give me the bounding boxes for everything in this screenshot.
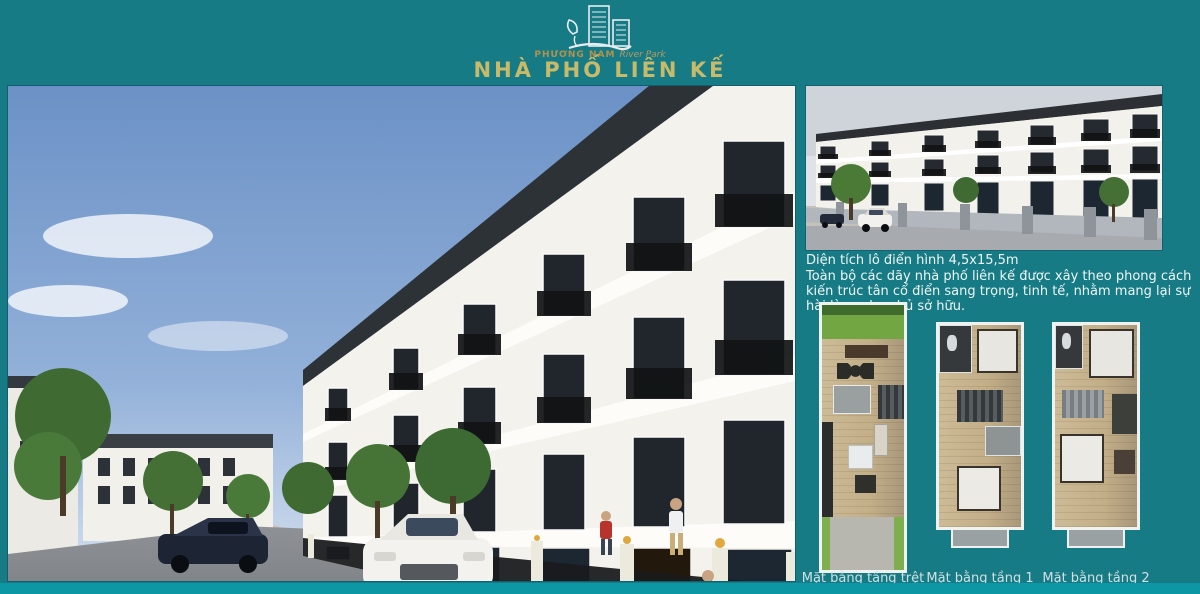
balcony [951, 530, 1009, 548]
floorplan-ground-floor [819, 302, 907, 573]
bathroom [833, 385, 871, 414]
bed [1060, 434, 1104, 482]
side-corridor [822, 422, 833, 517]
toilet [1062, 333, 1072, 349]
sofa [848, 445, 873, 469]
desk [1114, 450, 1135, 474]
tv-cabinet [855, 475, 876, 494]
main-render-image [8, 86, 795, 581]
street-perspective-illustration [8, 86, 795, 581]
driveway [822, 517, 904, 570]
floorplan-floor-2 [1052, 322, 1140, 530]
kitchen-counter [845, 345, 888, 358]
footer-accent-bar [0, 583, 1200, 594]
header-banner: PHƯƠNG NAM River Park NHÀ PHỐ LIÊN KẾ [0, 0, 1200, 86]
overview-render-image [806, 86, 1162, 250]
bed [957, 466, 1001, 510]
project-logo [0, 4, 1200, 52]
floorplan-floor-1 [936, 322, 1024, 530]
page-title: NHÀ PHỐ LIÊN KẾ [0, 58, 1200, 82]
bathroom [985, 426, 1021, 456]
staircase [878, 385, 904, 419]
staircase [1062, 390, 1105, 418]
bar-stools [837, 363, 875, 379]
side-table [874, 424, 887, 456]
staircase [957, 390, 1003, 422]
bed [977, 329, 1018, 373]
garden-area [822, 305, 904, 339]
row-houses-illustration [806, 86, 1162, 250]
lot-area-text: Diện tích lô điển hình 4,5x15,5m [806, 253, 1194, 268]
toilet [947, 335, 957, 351]
balcony [1067, 530, 1125, 548]
wardrobe [1112, 394, 1137, 434]
towers-leaf-wave-icon [535, 4, 665, 52]
bed [1089, 329, 1133, 377]
